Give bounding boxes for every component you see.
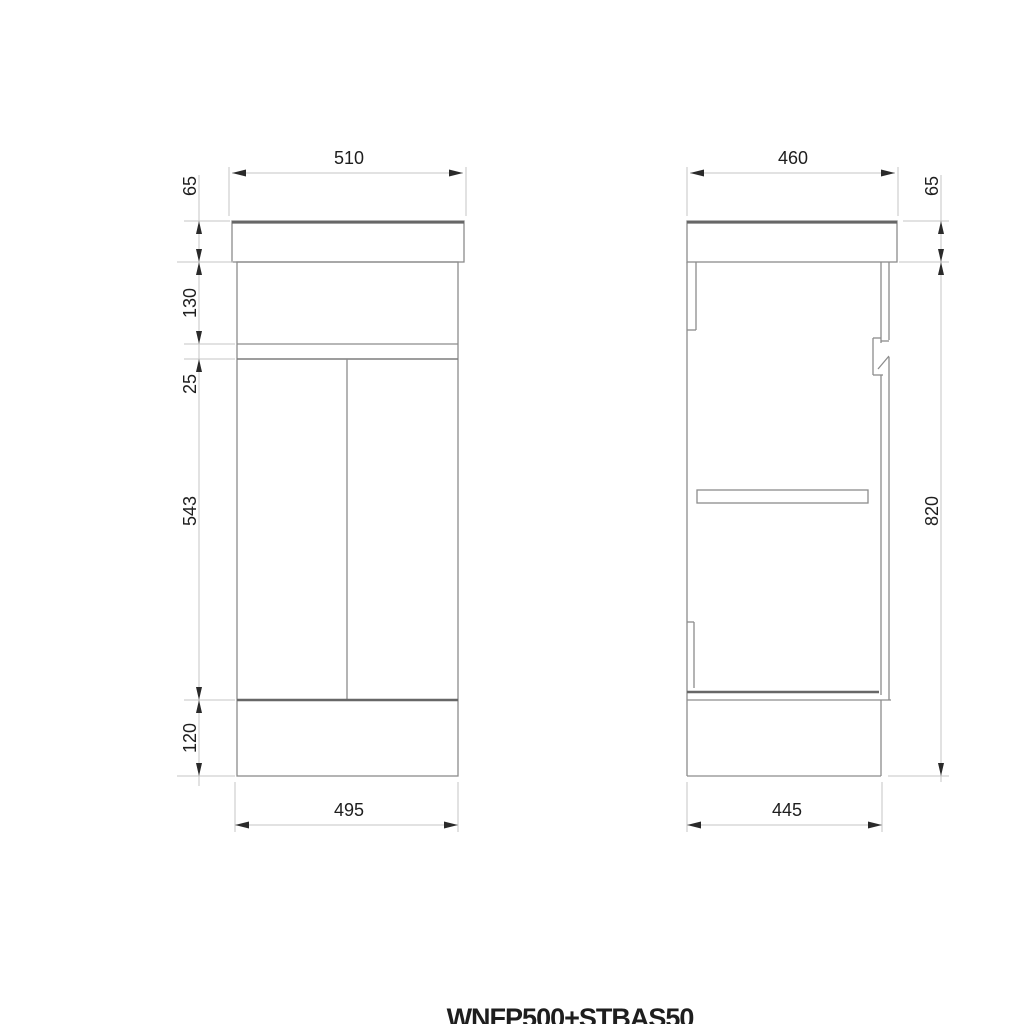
wall-bracket-hook <box>878 356 889 369</box>
basin-top-front <box>232 221 464 262</box>
dimension-front-bottom-width: 495 <box>235 782 458 832</box>
dim-820-label: 820 <box>922 496 942 526</box>
arrow-left-icon <box>232 170 246 177</box>
product-code-title: WNFP500+STBAS50 <box>447 1003 694 1024</box>
arrow-left-icon <box>235 822 249 829</box>
shelf <box>697 490 868 503</box>
arrow-right-icon <box>868 822 882 829</box>
dimension-front-left-chain: 65 130 25 543 120 <box>177 175 235 786</box>
arrow-right-icon <box>449 170 463 177</box>
dim-25-label: 25 <box>180 374 200 394</box>
dim-65-right-label: 65 <box>922 176 942 196</box>
basin-top-side <box>687 221 897 262</box>
vanity-dimension-drawing: 510 65 130 25 543 120 495 <box>0 0 1024 1024</box>
dim-460-label: 460 <box>778 148 808 168</box>
arrow-right-icon <box>444 822 458 829</box>
arrow-right-icon <box>881 170 895 177</box>
dimension-side-bottom-depth: 445 <box>687 782 882 832</box>
dim-130-label: 130 <box>180 288 200 318</box>
dimension-side-right-chain: 65 820 <box>888 175 949 782</box>
dimension-side-top-depth: 460 <box>687 148 898 216</box>
dim-495-label: 495 <box>334 800 364 820</box>
dim-445-label: 445 <box>772 800 802 820</box>
front-view <box>232 221 464 776</box>
dimension-front-top-width: 510 <box>229 148 466 216</box>
technical-drawing-page: 510 65 130 25 543 120 495 <box>0 0 1024 1024</box>
dim-65-left-label: 65 <box>180 176 200 196</box>
side-view <box>687 221 897 776</box>
dim-543-label: 543 <box>180 496 200 526</box>
dim-120-label: 120 <box>180 723 200 753</box>
dim-510-label: 510 <box>334 148 364 168</box>
arrow-left-icon <box>690 170 704 177</box>
arrow-left-icon <box>687 822 701 829</box>
